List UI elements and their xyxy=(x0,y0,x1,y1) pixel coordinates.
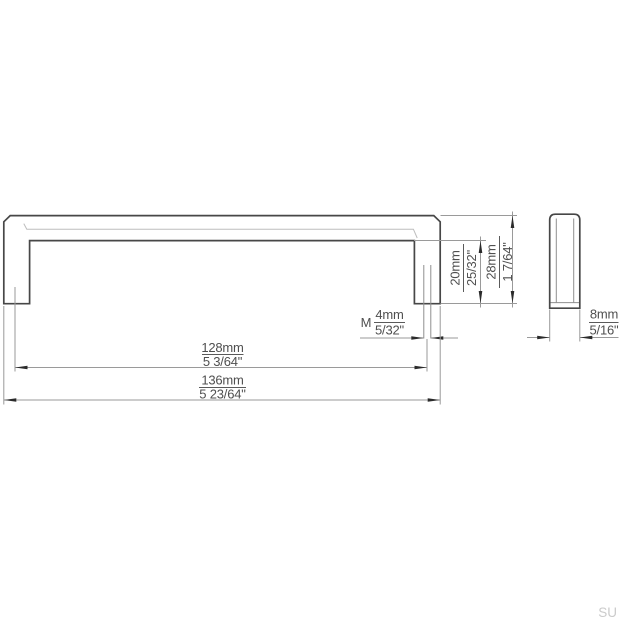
arrowhead-left xyxy=(4,398,16,402)
dim-value-mm: 4mm xyxy=(375,307,403,322)
arrowhead-left xyxy=(431,336,444,340)
technical-drawing-page: 20mm 25/32" 28mm 1 7/64" M 4mm 5/32" xyxy=(0,0,620,620)
thread-prefix: M xyxy=(361,315,372,330)
dim-total-height-label: 28mm 1 7/64" xyxy=(484,236,516,288)
dim-value-inch: 5/16" xyxy=(590,323,620,338)
arrowhead-right xyxy=(415,366,428,370)
arrowhead-up xyxy=(511,216,515,229)
front-view xyxy=(4,216,440,304)
dim-value-mm: 20mm xyxy=(448,250,463,285)
arrowhead-right xyxy=(428,398,441,402)
dim-value-mm: 128mm xyxy=(201,340,243,355)
dim-clearance: 20mm 25/32" xyxy=(414,237,486,308)
arrowhead-right xyxy=(411,336,424,340)
dim-value-inch: 25/32" xyxy=(464,249,479,286)
dim-value-mm: 136mm xyxy=(201,373,243,388)
watermark-text: SU xyxy=(598,605,617,620)
side-view xyxy=(550,214,580,308)
dim-value-inch: 5 3/64" xyxy=(203,354,243,369)
arrowhead-right xyxy=(537,336,550,340)
dim-depth: 8mm 5/16" xyxy=(527,307,619,342)
dim-value-inch: 5/32" xyxy=(375,323,405,338)
arrowhead-up xyxy=(479,241,483,254)
dim-value-inch: 1 7/64" xyxy=(500,242,515,282)
dim-clearance-label: 20mm 25/32" xyxy=(448,244,480,292)
dim-thread: M 4mm 5/32" xyxy=(360,265,458,340)
dim-value-inch: 5 23/64" xyxy=(199,387,246,402)
handle-bevel-edge-line xyxy=(24,224,417,238)
handle-dimension-drawing: 20mm 25/32" 28mm 1 7/64" M 4mm 5/32" xyxy=(0,0,620,620)
dim-value-mm: 28mm xyxy=(484,244,499,279)
arrowhead-down xyxy=(511,291,515,304)
dim-value-mm: 8mm xyxy=(590,307,618,322)
side-profile-contour xyxy=(550,214,580,308)
arrowhead-down xyxy=(479,291,483,304)
arrowhead-left xyxy=(15,366,28,370)
